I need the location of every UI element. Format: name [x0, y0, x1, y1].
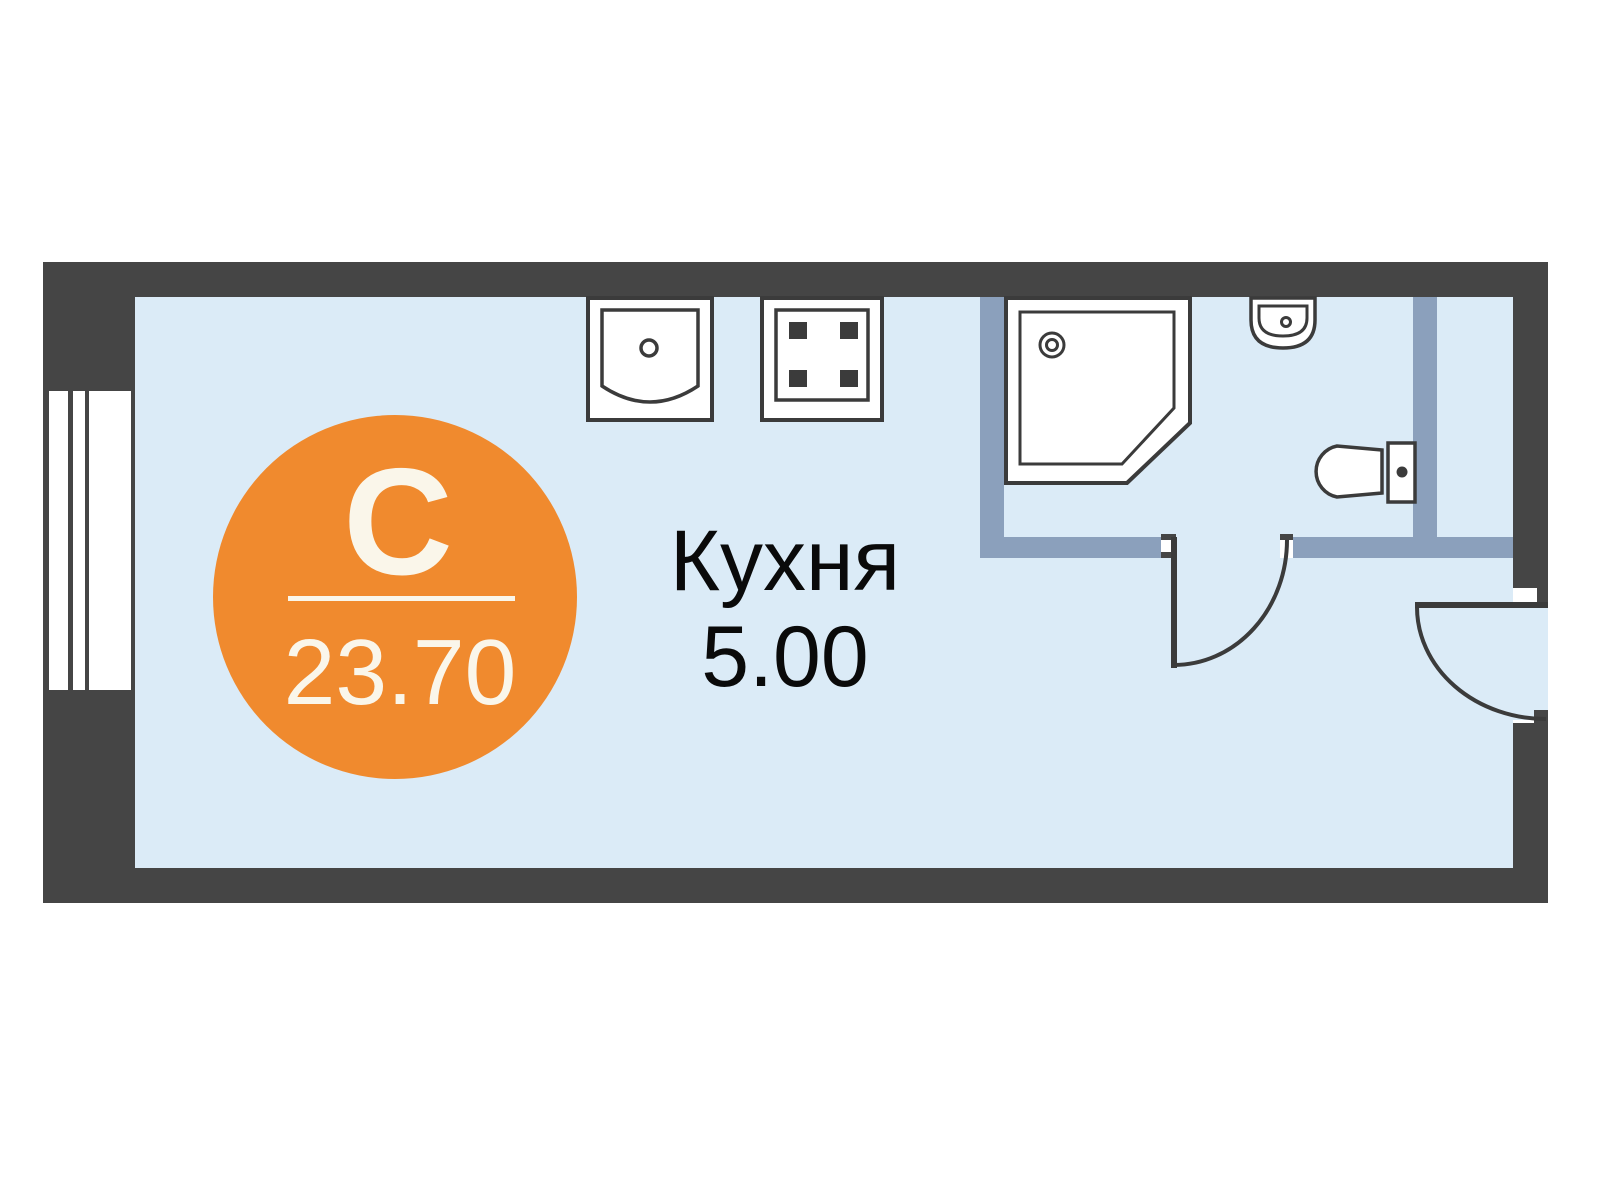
stove-burner — [789, 322, 807, 339]
floor-plan-page: С 23.70 Кухня 5.00 — [0, 0, 1600, 1200]
washbasin — [1251, 298, 1315, 348]
entrance-upper-jamb — [1537, 588, 1548, 603]
bathroom-wall-divider — [1413, 297, 1437, 558]
window-pane-1 — [49, 391, 68, 690]
stove-burner — [840, 370, 858, 387]
room-area-value: 5.00 — [701, 609, 868, 705]
bathroom-wall-bottom-left — [980, 537, 1162, 558]
stove-burner — [840, 322, 858, 339]
toilet-bowl — [1316, 446, 1382, 497]
unit-badge-divider — [288, 596, 515, 601]
room-name: Кухня — [670, 513, 900, 609]
window-pane-2 — [73, 391, 85, 690]
wall-right-upper — [1513, 262, 1548, 588]
stove-burner — [789, 370, 807, 387]
unit-area-value: 23.70 — [284, 620, 517, 724]
toilet-flush-button — [1397, 467, 1408, 478]
wall-right-lower — [1513, 723, 1548, 903]
wall-top — [43, 262, 1548, 297]
room-label: Кухня 5.00 — [670, 513, 900, 705]
toilet — [1316, 443, 1415, 502]
wall-bottom — [43, 868, 1548, 903]
stove — [762, 298, 882, 420]
bathroom-wall-bottom-right — [1293, 537, 1513, 558]
window — [49, 391, 131, 690]
unit-type-letter: С — [343, 437, 453, 607]
window-pane-3 — [89, 391, 131, 690]
kitchen-sink — [588, 298, 712, 420]
unit-badge[interactable]: С 23.70 — [213, 415, 577, 779]
bathroom-door-jamb-left-notch — [1161, 540, 1171, 552]
floor-plan: С 23.70 Кухня 5.00 — [0, 0, 1600, 1200]
bathroom-wall-left — [980, 297, 1004, 558]
entrance-doorway-floor — [1513, 603, 1548, 720]
